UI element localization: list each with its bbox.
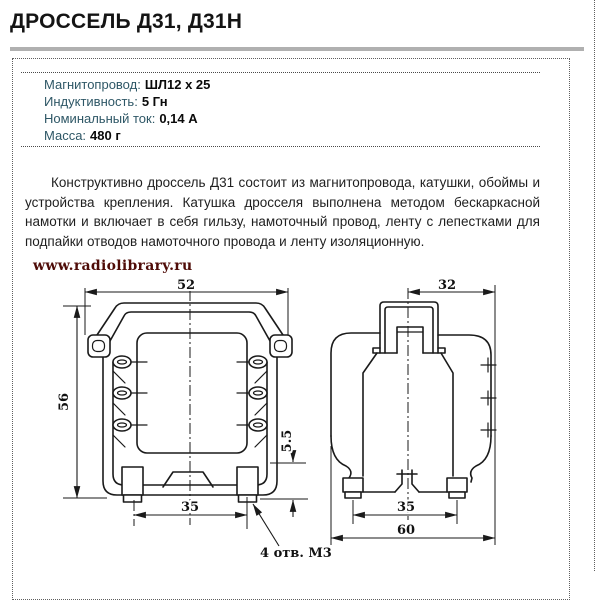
title-divider-rule (10, 47, 584, 51)
body-profile-outline (331, 333, 491, 484)
spec-label: Индуктивность: (44, 94, 138, 109)
spec-row-mass: Масса:480 г (44, 127, 540, 144)
dim-label-52: 52 (177, 278, 195, 293)
holes-note-label: 4 отв. М3 (260, 546, 332, 561)
page-title: ДРОССЕЛЬ Д31, Д31Н (10, 10, 242, 34)
watermark-url: www.radiolibrary.ru (33, 258, 192, 274)
front-view-drawing: 52 56 35 5.5 4 отв. М3 (57, 278, 332, 561)
holes-note-leader: 4 отв. М3 (253, 504, 332, 561)
spec-value: 5 Гн (142, 94, 168, 109)
dim-label-35-front: 35 (181, 500, 199, 515)
top-bracket-outline (373, 302, 445, 353)
spec-label: Магнитопровод: (44, 77, 141, 92)
page-edge-dotted-line (594, 0, 595, 571)
coil-face (137, 333, 247, 453)
dim-label-32: 32 (438, 278, 456, 293)
dim-side-35: 35 (353, 500, 457, 524)
dim-label-35-side: 35 (397, 500, 415, 515)
spec-row-core: Магнитопровод:ШЛ12 х 25 (44, 76, 540, 93)
spec-label: Масса: (44, 128, 86, 143)
document-page: { "page": { "title": "ДРОССЕЛЬ Д31, Д31Н… (0, 0, 607, 571)
dim-half-width-32: 32 (408, 278, 495, 545)
spec-table: Магнитопровод:ШЛ12 х 25 Индуктивность:5 … (21, 72, 540, 147)
spec-value: 480 г (90, 128, 121, 143)
description-paragraph: Конструктивно дроссель Д31 состоит из ма… (25, 173, 540, 251)
mounting-feet-side (343, 470, 467, 498)
spec-value: ШЛ12 х 25 (145, 77, 211, 92)
spec-label: Номинальный ток: (44, 111, 155, 126)
right-ear-lug (270, 335, 292, 357)
side-terminal-pins (481, 358, 496, 437)
technical-drawing: 52 56 35 5.5 4 отв. М3 (55, 278, 555, 570)
left-ear-lug (88, 335, 110, 357)
dim-label-56: 56 (57, 393, 72, 411)
spec-row-current: Номинальный ток:0,14 А (44, 110, 540, 127)
spec-value: 0,14 А (159, 111, 197, 126)
dim-label-5-5: 5.5 (280, 430, 295, 453)
side-view-drawing: 32 35 60 (331, 278, 496, 545)
dim-label-60: 60 (397, 523, 415, 538)
spec-row-inductance: Индуктивность:5 Гн (44, 93, 540, 110)
